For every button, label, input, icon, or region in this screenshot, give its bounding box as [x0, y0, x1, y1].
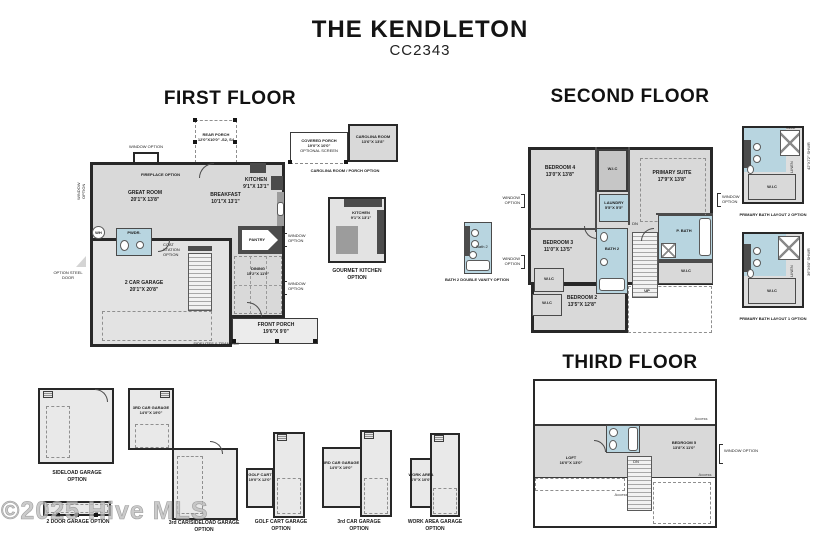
- parking-outline: [433, 488, 457, 514]
- golf-cart-label: GOLF CART19'0"X 12'0": [244, 472, 276, 482]
- garage-parking-outline: [102, 311, 212, 341]
- access-label: Access: [690, 416, 712, 421]
- dining-grid: [234, 285, 282, 286]
- wic-label: W.I.C: [758, 288, 786, 293]
- access-label: Access: [610, 492, 632, 497]
- third-car-garage-label: 3RD CAR GARAGE14'0"X 19'0": [128, 405, 174, 415]
- parking-outline: [364, 478, 388, 514]
- gourmet-island: [336, 226, 358, 254]
- shower: [778, 236, 800, 260]
- garage-door-icon: [434, 435, 444, 442]
- second-floor-heading: SECOND FLOOR: [530, 86, 730, 108]
- work-area-label: WORK AREA6'0"X 10'0": [404, 472, 438, 482]
- carolina-room-label: CAROLINA ROOM13'6"X 13'8": [350, 134, 396, 144]
- bath2-vanity-label: Bath 2: [472, 244, 492, 249]
- floorplan-sheet: THE KENDLETON CC2343 FIRST FLOOR SECOND …: [0, 0, 840, 554]
- cooktop: [250, 163, 266, 173]
- porch-post: [313, 339, 317, 343]
- parking-outline: [277, 478, 301, 514]
- wic-label: W.I.C: [674, 268, 698, 273]
- coat-closet: [188, 246, 212, 251]
- sink: [753, 155, 761, 163]
- loft-label: LOFT16'0"X 13'0": [545, 455, 597, 465]
- plan-number: CC2343: [0, 42, 840, 59]
- third-car-caption: 3rd CAR GARAGE OPTION: [328, 519, 390, 532]
- work-area-caption: WORK AREA GARAGE OPTION: [404, 519, 466, 532]
- window-option-label: WINDOW OPTION: [724, 448, 758, 453]
- parking-outline: [135, 424, 169, 448]
- seat-label: SEAT: [782, 125, 800, 130]
- kitchen-sink: [277, 202, 284, 216]
- window-option-bracket: [521, 194, 525, 208]
- stairs: [627, 456, 652, 511]
- toilet: [469, 251, 477, 259]
- garage-door-icon: [277, 434, 287, 441]
- tub: [699, 218, 711, 256]
- toilet: [120, 240, 129, 251]
- vanity-counter: [744, 140, 751, 168]
- pantry-label: PANTRY: [240, 237, 274, 242]
- gourmet-counter-top: [344, 199, 382, 207]
- sink: [136, 241, 144, 249]
- fireplace-bump: [133, 152, 159, 164]
- sink: [609, 428, 618, 437]
- watermark: ©2025 Hive MLS: [1, 497, 209, 526]
- bath-layout2-caption: PRIMARY BATH LAYOUT 2 OPTION: [736, 212, 810, 217]
- sink: [471, 229, 479, 237]
- primary-bath-label: P. BATH: [666, 228, 702, 233]
- bath2-vanity-caption: BATH 2 DOUBLE VANITY OPTION: [444, 277, 510, 282]
- work-area-box: [410, 458, 432, 508]
- toilet: [600, 232, 608, 242]
- garage-door-icon: [364, 432, 374, 439]
- bath2-label: BATH 2: [596, 246, 628, 251]
- window-option-label: WINDOW OPTION: [492, 256, 520, 266]
- kneewall-outline: [535, 478, 625, 491]
- garage-label: 2 CAR GARAGE20'1"X 20'8": [104, 280, 184, 293]
- fireplace-option-label: FIREPLACE OPTION: [128, 172, 193, 177]
- window-option-bracket: [521, 255, 525, 269]
- page-title: THE KENDLETON: [0, 16, 840, 44]
- first-floor-heading: FIRST FLOOR: [130, 88, 330, 110]
- window-option-label: WINDOW OPTION: [288, 281, 318, 291]
- tub: [599, 278, 625, 291]
- shower-dims-label: 36"X60" SHWR: [806, 238, 814, 286]
- bedroom3-label: BEDROOM 311'0"X 13'5": [528, 240, 588, 253]
- dn-label: DN: [628, 459, 644, 464]
- bath-layout1-caption: PRIMARY BATH LAYOUT 1 OPTION: [736, 316, 810, 321]
- bedroom5-label: BEDROOM 513'8"X 11'0": [658, 440, 710, 450]
- wic-label: W.I.C: [536, 276, 562, 281]
- shower: [661, 243, 676, 258]
- steel-door-option-label: OPTION STEEL DOOR: [48, 270, 88, 280]
- gourmet-kitchen-label: KITCHEN9'1"X 13'1": [344, 210, 378, 220]
- wic-label: W.I.C: [599, 166, 626, 171]
- dining-label: DINING15'2"X 11'0": [238, 266, 278, 276]
- sink: [600, 258, 608, 266]
- water-heater-label: WH: [92, 230, 105, 235]
- window-option-label: WINDOW OPTION: [76, 176, 84, 206]
- porch-post: [233, 118, 237, 122]
- sink: [753, 259, 761, 267]
- third-floor-heading: THIRD FLOOR: [530, 352, 730, 374]
- gourmet-counter-right: [377, 210, 384, 254]
- carolina-option-caption: CAROLINA ROOM / PORCH OPTION: [290, 168, 400, 173]
- window-option-label: WINDOW OPTION: [288, 233, 318, 243]
- toilet: [747, 165, 754, 174]
- wic-label: W.I.C: [758, 184, 786, 189]
- window-option-label: WINDOW OPTION: [120, 144, 172, 149]
- shower: [780, 130, 800, 156]
- stairs: [188, 253, 212, 311]
- sink: [753, 247, 761, 255]
- sidelites-label: SIDELITES & TRANSOM: [190, 341, 242, 346]
- sideload-garage-caption: SIDELOAD GARAGE OPTION: [45, 470, 109, 483]
- fridge: [271, 176, 283, 190]
- laundry-label: LAUNDRY5'5"X 5'5": [599, 200, 629, 210]
- garage-door-swing: [210, 441, 223, 454]
- gourmet-option-caption: GOURMET KITCHEN OPTION: [328, 268, 386, 281]
- covered-porch-label: COVERED PORCH19'0"X 10'0" OPTIONAL SCREE…: [292, 138, 346, 154]
- front-porch-label: FRONT PORCH19'6"X 9'0": [244, 322, 308, 335]
- vanity-counter: [744, 244, 751, 272]
- shower-dims-label: 42"X72" SHWR: [806, 132, 814, 180]
- dn-label: DN: [626, 221, 644, 226]
- third-car-side-box: [322, 447, 362, 508]
- parking-outline: [46, 406, 70, 458]
- rear-porch-label: REAR PORCH12'0"X10'0" -S2, S4: [196, 132, 236, 142]
- tub: [466, 260, 490, 271]
- toilet: [747, 269, 754, 278]
- bedroom2-label: BEDROOM 213'5"X 12'8": [552, 295, 612, 308]
- window-option-bracket: [717, 193, 721, 207]
- access-label: Access: [694, 472, 716, 477]
- great-room-label: GREAT ROOM20'1"X 13'8": [115, 190, 175, 203]
- primary-suite-label: PRIMARY SUITE17'9"X 13'8": [636, 170, 708, 183]
- porch-post: [193, 118, 197, 122]
- up-label: UP: [638, 288, 656, 293]
- garage-door-icon: [43, 391, 53, 398]
- window-option-label: WINDOW OPTION: [492, 195, 520, 205]
- sink: [753, 143, 761, 151]
- window-option-bracket: [283, 233, 287, 247]
- powder-room-label: PWDR.: [118, 230, 150, 235]
- porch-post: [288, 160, 292, 164]
- breakfast-label: BREAKFAST10'1"X 13'1": [198, 192, 253, 205]
- tray-ceiling-outline: [640, 158, 706, 222]
- steel-door-symbol: [76, 256, 86, 267]
- window-option-bracket: [283, 281, 287, 295]
- storage-outline: [653, 482, 711, 524]
- tub: [628, 427, 638, 451]
- bedroom4-label: BEDROOM 413'0"X 13'8": [530, 165, 590, 178]
- window-option-bracket: [719, 444, 723, 464]
- garage-door-icon: [160, 391, 170, 398]
- golf-cart-caption: GOLF CART GARAGE OPTION: [250, 519, 312, 532]
- porch-post: [275, 339, 279, 343]
- third-car-label: 3RD CAR GARAGE14'0"X 19'0": [318, 460, 364, 470]
- toilet: [609, 440, 617, 450]
